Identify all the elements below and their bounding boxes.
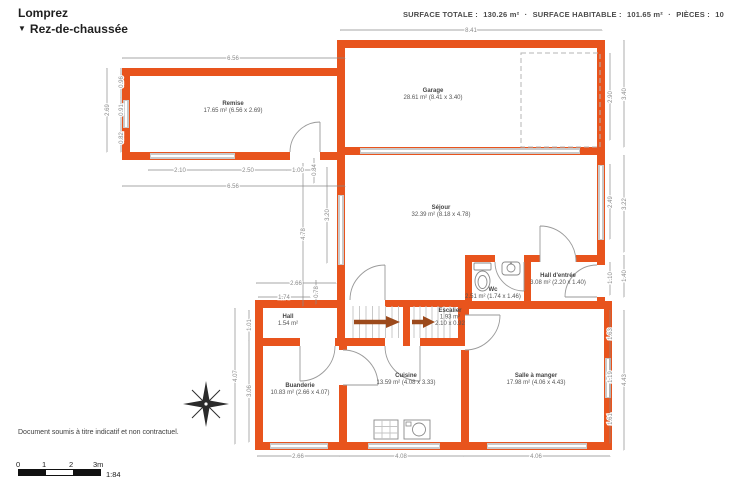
dim-label: 1.00 — [292, 168, 304, 174]
room-name: Remise — [222, 101, 244, 107]
scale-bar-graphic — [18, 469, 101, 476]
room-name: Hall — [282, 314, 293, 320]
room-dims: 2.10 x 0.92 — [435, 321, 465, 327]
dim-label: 1.01 — [247, 319, 253, 331]
dim-label: 1.61 — [608, 413, 614, 425]
dim-label: 4.06 — [530, 454, 542, 460]
dim-label: 1.10 — [608, 272, 614, 284]
compass-rose-icon — [183, 381, 229, 427]
sink-icon — [502, 262, 520, 275]
room-detail: 2.51 m² (1.74 x 1.46) — [465, 294, 521, 300]
scale-tick-0: 0 — [16, 460, 20, 469]
scale-ratio: 1:84 — [106, 470, 121, 479]
scale-tick-1: 1 — [42, 460, 46, 469]
dim-label: 4.08 — [395, 454, 407, 460]
room-name: Escalier — [438, 308, 462, 314]
dim-label: 2.66 — [290, 281, 302, 287]
walls — [122, 40, 612, 450]
dim-label: 4.78 — [301, 228, 307, 240]
garage-dashed-area — [521, 53, 600, 147]
stairs-up-arrow — [354, 316, 400, 328]
dim-label: 1.40 — [622, 270, 628, 282]
dim-label: 2.66 — [292, 454, 304, 460]
room-detail: 28.61 m² (8.41 x 3.40) — [403, 95, 462, 101]
room-name: Salle à manger — [515, 373, 558, 379]
scale-tick-labels: 0 1 2 3m — [18, 460, 138, 469]
dimension-labels: 8.41 6.56 2.10 2.50 1.00 6.56 2.66 1.74 … — [105, 28, 628, 460]
room-name: Séjour — [432, 205, 451, 211]
scale-bar: 0 1 2 3m 1:84 — [18, 460, 138, 486]
dim-label: 2.90 — [608, 91, 614, 103]
dim-label: 3.20 — [325, 209, 331, 221]
room-label-remise: Remise 17.65 m² (6.56 x 2.69) — [203, 101, 262, 114]
room-label-buanderie: Buanderie 10.83 m² (2.66 x 4.07) — [270, 383, 329, 396]
dim-label: 6.56 — [227, 184, 239, 190]
room-detail: 1.93 m² — [440, 315, 460, 321]
scale-tick-3: 3m — [93, 460, 103, 469]
dim-label: 0.91 — [119, 104, 125, 116]
dim-label: 3.06 — [247, 385, 253, 397]
room-detail: 17.65 m² (6.56 x 2.69) — [203, 108, 262, 114]
dim-label: 3.40 — [622, 88, 628, 100]
dim-label: 3.22 — [622, 198, 628, 210]
dim-label: 1.19 — [608, 371, 614, 383]
dim-label: 1.74 — [278, 295, 290, 301]
washer-icon — [404, 420, 430, 439]
room-name: Buanderie — [285, 383, 315, 389]
dim-label: 0.78 — [314, 286, 320, 298]
dim-label: 0.82 — [119, 132, 125, 144]
dim-label: 6.56 — [227, 56, 239, 62]
dim-label: 0.96 — [119, 76, 125, 88]
dim-label: 2.49 — [608, 196, 614, 208]
dim-label: 2.50 — [242, 168, 254, 174]
dim-label: 2.69 — [105, 104, 111, 116]
room-name: Hall d'entrée — [540, 273, 576, 279]
room-label-cuisine: Cuisine 13.59 m² (4.08 x 3.33) — [376, 373, 435, 386]
room-detail: 10.83 m² (2.66 x 4.07) — [270, 390, 329, 396]
dimension-lines — [107, 30, 624, 456]
stove-icon — [374, 420, 398, 439]
room-name: Garage — [423, 88, 444, 94]
dim-label: 8.41 — [465, 28, 477, 34]
scale-tick-2: 2 — [69, 460, 73, 469]
floor-plan-canvas: 8.41 6.56 2.10 2.50 1.00 6.56 2.66 1.74 … — [0, 0, 736, 490]
room-label-garage: Garage 28.61 m² (8.41 x 3.40) — [403, 88, 462, 101]
room-detail: 13.59 m² (4.08 x 3.33) — [376, 380, 435, 386]
room-label-salle-a-manger: Salle à manger 17.98 m² (4.06 x 4.43) — [506, 373, 565, 386]
dim-label: 0.84 — [312, 164, 318, 176]
room-label-sejour: Séjour 32.39 m² (8.18 x 4.78) — [411, 205, 470, 218]
disclaimer-text: Document soumis à titre indicatif et non… — [18, 428, 188, 438]
dim-label: 1.63 — [608, 328, 614, 340]
room-detail: 32.39 m² (8.18 x 4.78) — [411, 212, 470, 218]
dim-label: 4.07 — [233, 370, 239, 382]
room-name: Wc — [489, 287, 499, 293]
dim-label: 2.10 — [174, 168, 186, 174]
room-detail: 1.54 m² — [278, 321, 298, 327]
room-detail: 3.08 m² (2.20 x 1.40) — [530, 280, 586, 286]
dim-label: 4.43 — [622, 374, 628, 386]
room-name: Cuisine — [395, 373, 417, 379]
room-label-hall-entree: Hall d'entrée 3.08 m² (2.20 x 1.40) — [530, 273, 586, 286]
room-detail: 17.98 m² (4.06 x 4.43) — [506, 380, 565, 386]
room-label-hall: Hall 1.54 m² — [278, 314, 298, 327]
